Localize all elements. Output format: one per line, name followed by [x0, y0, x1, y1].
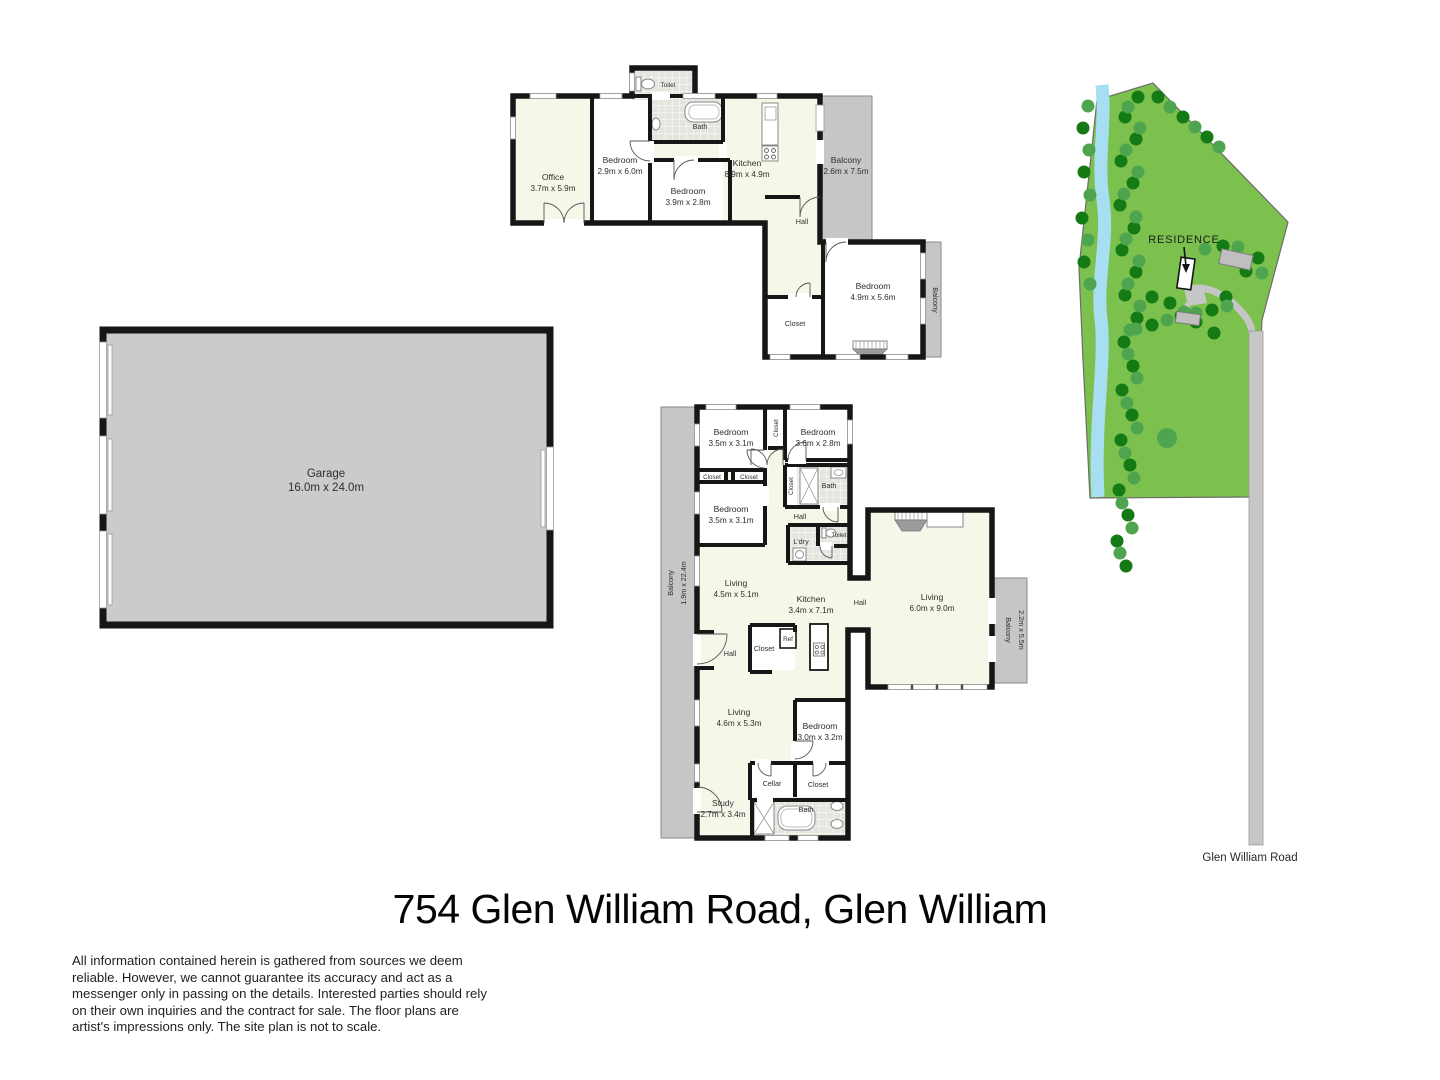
- living3-dims: 4.6m x 5.3m: [716, 719, 761, 728]
- upper-bedroom1-label: Bedroom: [603, 155, 638, 165]
- tree-icon: [1120, 144, 1133, 157]
- lower-bathB-label: Bath: [799, 805, 814, 814]
- tree-icon: [1134, 122, 1147, 135]
- living2-label: Living: [921, 592, 944, 602]
- lower-balconyL-label: Balcony: [666, 570, 675, 596]
- study-label: Study: [712, 798, 735, 808]
- office-label: Office: [542, 172, 565, 182]
- laundry-label: L'dry: [793, 537, 809, 546]
- upper-hall-floor: [765, 197, 823, 297]
- lower-floor-plan: Bedroom 3.5m x 3.1m Closet Bedroom 3.6m …: [661, 405, 1027, 841]
- site-plan: RESIDENCE Glen William Road: [1076, 83, 1298, 864]
- lower-balconyL-dims: 1.9m x 22.4m: [679, 561, 688, 605]
- kitchen-island-icon: [810, 624, 828, 670]
- tree-icon: [1131, 372, 1144, 385]
- lower-bedroomB-dims: 3.0m x 3.2m: [797, 733, 842, 742]
- tree-icon: [1083, 144, 1096, 157]
- tree-icon: [1130, 211, 1143, 224]
- tree-icon: [1084, 278, 1097, 291]
- tree-icon: [1127, 360, 1140, 373]
- tree-icon: [1119, 447, 1132, 460]
- tree-icon: [1157, 428, 1177, 448]
- lower-closetS1-label: Closet: [703, 474, 721, 481]
- tree-icon: [1124, 459, 1137, 472]
- tree-icon: [1126, 409, 1139, 422]
- creek: [1097, 85, 1104, 497]
- lower-balcony-left-floor: [661, 407, 697, 838]
- tree-icon: [1078, 256, 1091, 269]
- upper-bedroom1-dims: 2.9m x 6.0m: [597, 167, 642, 176]
- road-label: Glen William Road: [1202, 852, 1297, 864]
- office-dims: 3.7m x 5.9m: [530, 184, 575, 193]
- tree-icon: [1132, 91, 1145, 104]
- tree-icon: [1201, 131, 1214, 144]
- lower-closet-ref-label: Closet: [754, 644, 774, 653]
- lower-bedroomT3-dims: 3.5m x 3.1m: [708, 516, 753, 525]
- lower-hallM-label: Hall: [854, 598, 867, 607]
- tree-icon: [1118, 188, 1131, 201]
- lower-bedroomT2-dims: 3.6m x 2.8m: [795, 439, 840, 448]
- lower-bedroomT1-label: Bedroom: [714, 427, 749, 437]
- tree-icon: [1208, 327, 1221, 340]
- kitchen-counter-icon: [762, 103, 778, 145]
- tree-icon: [1111, 535, 1124, 548]
- tree-icon: [1114, 547, 1127, 560]
- tree-icon: [1115, 434, 1128, 447]
- upper-balcony1-dims: 2.6m x 7.5m: [823, 167, 868, 176]
- garage-label: Garage: [307, 468, 345, 480]
- lower-bedroomB-floor: [795, 700, 848, 763]
- tree-icon: [1206, 304, 1219, 317]
- lower-bedroomT1-dims: 3.5m x 3.1m: [708, 439, 753, 448]
- tree-icon: [1221, 300, 1234, 313]
- lower-hallT-label: Hall: [794, 512, 807, 521]
- tree-icon: [1082, 234, 1095, 247]
- living1-dims: 4.5m x 5.1m: [713, 590, 758, 599]
- living2-dims: 6.0m x 9.0m: [909, 604, 954, 613]
- tree-icon: [1082, 100, 1095, 113]
- tree-icon: [1077, 122, 1090, 135]
- tree-icon: [1252, 252, 1265, 265]
- stove-icon: [762, 146, 778, 161]
- study-dims: 2.7m x 3.4m: [700, 810, 745, 819]
- upper-bedroom3-dims: 4.9m x 5.6m: [850, 293, 895, 302]
- ref-label: Ref: [783, 636, 793, 643]
- office-floor: [515, 98, 592, 223]
- upper-floor-plan: Toilet Bath Office 3.7m x 5.9m Bedroom 2…: [511, 68, 942, 360]
- washer-icon: [793, 548, 806, 561]
- upper-bath-label: Bath: [693, 122, 708, 131]
- road: [1249, 331, 1263, 845]
- upper-bedroom3-label: Bedroom: [856, 281, 891, 291]
- disclaimer-text: All information contained herein is gath…: [72, 953, 496, 1036]
- tree-icon: [1122, 278, 1135, 291]
- living1-label: Living: [725, 578, 748, 588]
- upper-balcony1-label: Balcony: [831, 155, 862, 165]
- tree-icon: [1146, 319, 1159, 332]
- tree-icon: [1130, 323, 1143, 336]
- tree-icon: [1133, 255, 1146, 268]
- tree-icon: [1177, 111, 1190, 124]
- tree-icon: [1116, 497, 1129, 510]
- tree-icon: [1189, 121, 1202, 134]
- lower-closetB-label: Closet: [808, 780, 828, 789]
- tree-icon: [1134, 300, 1147, 313]
- tree-icon: [1131, 422, 1144, 435]
- upper-kitchen-dims: 8.9m x 4.9m: [724, 170, 769, 179]
- tree-icon: [1119, 289, 1132, 302]
- upper-balcony2-label: Balcony: [931, 287, 940, 313]
- lower-kitchen-label: Kitchen: [797, 594, 826, 604]
- tree-icon: [1118, 336, 1131, 349]
- tree-icon: [1084, 189, 1097, 202]
- garage-dims: 16.0m x 24.0m: [288, 482, 364, 494]
- tree-icon: [1128, 222, 1141, 235]
- tree-icon: [1076, 212, 1089, 225]
- tree-icon: [1164, 101, 1177, 114]
- lower-bedroomT3-label: Bedroom: [714, 504, 749, 514]
- tree-icon: [1256, 267, 1269, 280]
- cellar-label: Cellar: [763, 779, 782, 788]
- property-address-title: 754 Glen William Road, Glen William: [0, 886, 1440, 933]
- tree-icon: [1131, 312, 1144, 325]
- tree-icon: [1164, 297, 1177, 310]
- lower-closetV1-label: Closet: [773, 419, 780, 437]
- lower-balconyR-label: Balcony: [1004, 617, 1013, 643]
- upper-bedroom2-dims: 3.9m x 2.8m: [665, 198, 710, 207]
- tree-icon: [1213, 141, 1226, 154]
- lower-balconyR-dims: 2.2m x 5.5m: [1017, 610, 1026, 650]
- tree-icon: [1132, 166, 1145, 179]
- upper-kitchen-label: Kitchen: [733, 158, 762, 168]
- lower-toilet-label: Toilet: [832, 532, 847, 539]
- lower-bedroomT2-label: Bedroom: [801, 427, 836, 437]
- floorplan-page: Toilet Bath Office 3.7m x 5.9m Bedroom 2…: [0, 0, 1440, 1080]
- tree-icon: [1122, 101, 1135, 114]
- tree-icon: [1122, 509, 1135, 522]
- lower-kitchen-dims: 3.4m x 7.1m: [788, 606, 833, 615]
- tree-icon: [1120, 233, 1133, 246]
- tree-icon: [1161, 314, 1174, 327]
- upper-hall-label: Hall: [796, 217, 809, 226]
- tree-icon: [1130, 266, 1143, 279]
- garage-plan: Garage 16.0m x 24.0m: [100, 330, 554, 625]
- residence-label: RESIDENCE: [1148, 234, 1219, 246]
- lower-closetV2-label: Closet: [788, 477, 795, 495]
- tree-icon: [1116, 384, 1129, 397]
- lower-bathT-label: Bath: [822, 481, 837, 490]
- upper-toilet-label: Toilet: [661, 82, 676, 89]
- lower-hallB-label: Hall: [724, 649, 737, 658]
- tree-icon: [1078, 166, 1091, 179]
- tree-icon: [1122, 348, 1135, 361]
- tree-icon: [1113, 484, 1126, 497]
- tree-icon: [1126, 522, 1139, 535]
- tree-icon: [1128, 472, 1141, 485]
- tree-icon: [1121, 397, 1134, 410]
- tree-icon: [1120, 560, 1133, 573]
- upper-closet-label: Closet: [785, 319, 805, 328]
- tree-icon: [1146, 291, 1159, 304]
- tree-icon: [1152, 91, 1165, 104]
- lower-bedroomB-label: Bedroom: [803, 721, 838, 731]
- upper-bedroom2-label: Bedroom: [671, 186, 706, 196]
- living3-label: Living: [728, 707, 751, 717]
- lower-closetS2-label: Closet: [740, 474, 758, 481]
